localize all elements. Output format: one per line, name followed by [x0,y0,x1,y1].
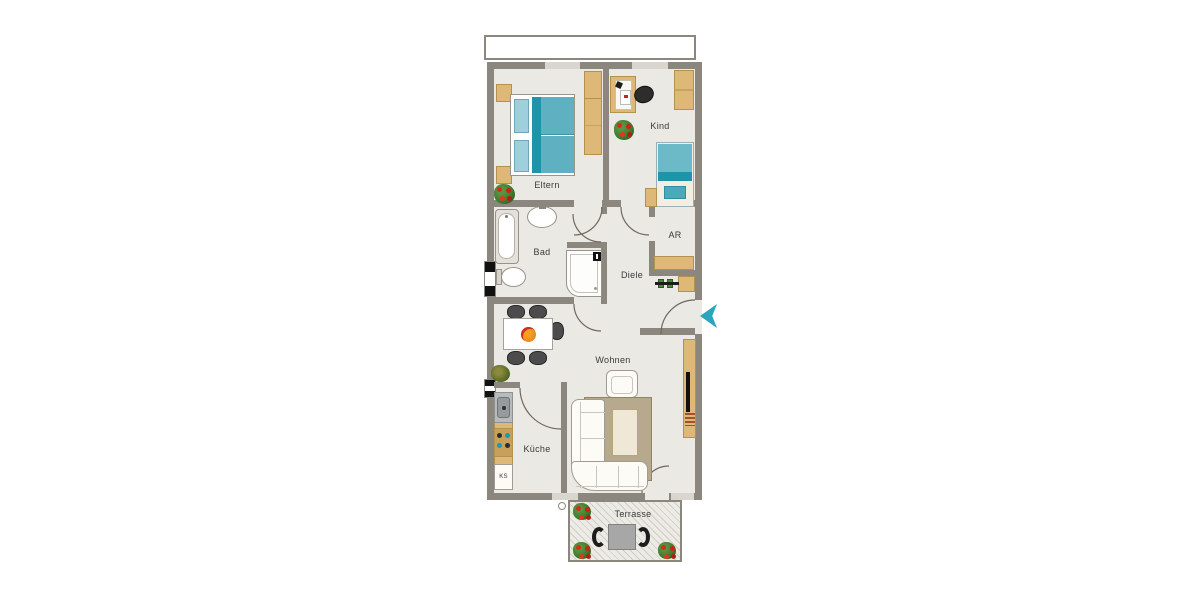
coffee-table [612,409,638,456]
single-bed [656,142,694,207]
fridge-label: KS [495,474,512,480]
circle-symbol [558,502,566,510]
tv-icon [686,372,690,412]
fruit-bowl-icon [521,327,536,342]
room-label-ar: AR [662,230,688,240]
toilet [501,267,526,287]
wall-eltern-south-b [602,200,609,207]
plant-eltern [494,184,515,204]
window-kueche-south [552,493,578,500]
terrace-plant [573,542,591,559]
dining-chair [529,351,547,365]
room-label-wohnen: Wohnen [585,355,641,365]
wall-bad-door-stub [601,207,607,214]
dining-chair [507,351,525,365]
sink [527,206,557,228]
faucet-icon [502,406,506,410]
dining-table [503,318,553,350]
wall-bad-south [494,297,574,304]
room-label-eltern: Eltern [520,180,574,190]
pillow [514,140,529,172]
terrace-chair [592,527,606,547]
shoe-rack [655,278,679,290]
entry-arrow-icon [700,304,717,328]
terrace: Terrasse [568,500,682,562]
stove [494,428,513,457]
room-label-diele: Diele [608,270,656,280]
ar-shelf [654,256,694,270]
room-label-kind: Kind [636,121,684,131]
wall-diele-wohnen [640,328,695,335]
dining-chair [529,305,547,319]
terrace-plant [658,542,676,559]
terrace-table [608,524,636,550]
toilet-tank [496,269,502,285]
fridge: KS [494,464,513,490]
faucet-icon [539,205,546,209]
wall-bottom [487,493,702,500]
desk [610,76,636,113]
pillow [664,186,686,199]
window-eltern [545,62,580,69]
wall-right [695,62,702,500]
drawers [685,413,695,426]
window-bad-icon [484,261,496,297]
bathtub [495,209,519,264]
diele-shelf [678,276,695,292]
dining-chair [507,305,525,319]
kitchen-sink [494,392,513,423]
floorplan-canvas: Eltern Kind Bad Diele AR [0,0,1200,600]
wall-kueche-east [561,382,567,493]
window-wohnen-south [671,493,694,500]
upper-floor-outline [484,35,696,60]
pillow [514,99,529,133]
room-label-terrasse: Terrasse [602,509,664,519]
entry-door-gap [695,300,702,334]
wall-kueche-north [494,382,520,388]
tv-board [683,339,696,438]
wardrobe-eltern [584,71,602,155]
double-bed [510,94,575,176]
shower [566,250,602,297]
shower-fixture-icon [593,252,601,261]
wardrobe-kind [674,70,694,110]
wall-top [487,62,702,69]
drain-icon [594,287,597,290]
armchair [606,370,638,398]
bedside-kind [645,188,657,207]
wall-eltern-kind [603,69,609,207]
papers [620,90,631,105]
room-label-bad: Bad [520,247,564,257]
duvet-edge [532,97,541,173]
terrace-door-gap [645,493,669,500]
window-kind [632,62,668,69]
terrace-plant [573,503,591,520]
room-label-kueche: Küche [512,444,562,454]
wall-ar-west-a [649,207,655,217]
wall-kind-south-a [609,200,621,207]
terrace-chair [636,527,650,547]
sofa-section-horizontal [571,461,648,491]
plant-small [491,365,510,382]
plant-kind [614,120,634,140]
faucet-icon [505,215,508,218]
